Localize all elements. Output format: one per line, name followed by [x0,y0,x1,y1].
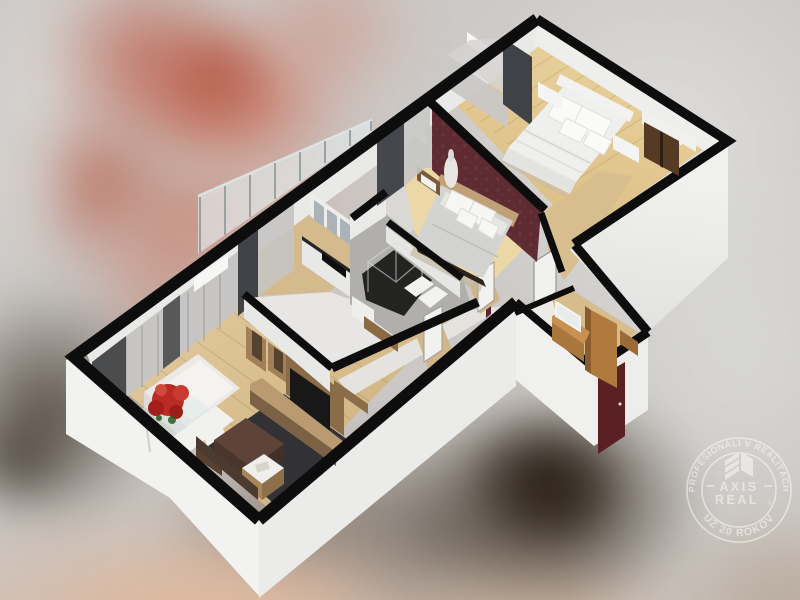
svg-text:®: ® [768,500,772,507]
svg-text:AXIS: AXIS [719,480,758,494]
svg-text:REAL: REAL [715,493,759,507]
